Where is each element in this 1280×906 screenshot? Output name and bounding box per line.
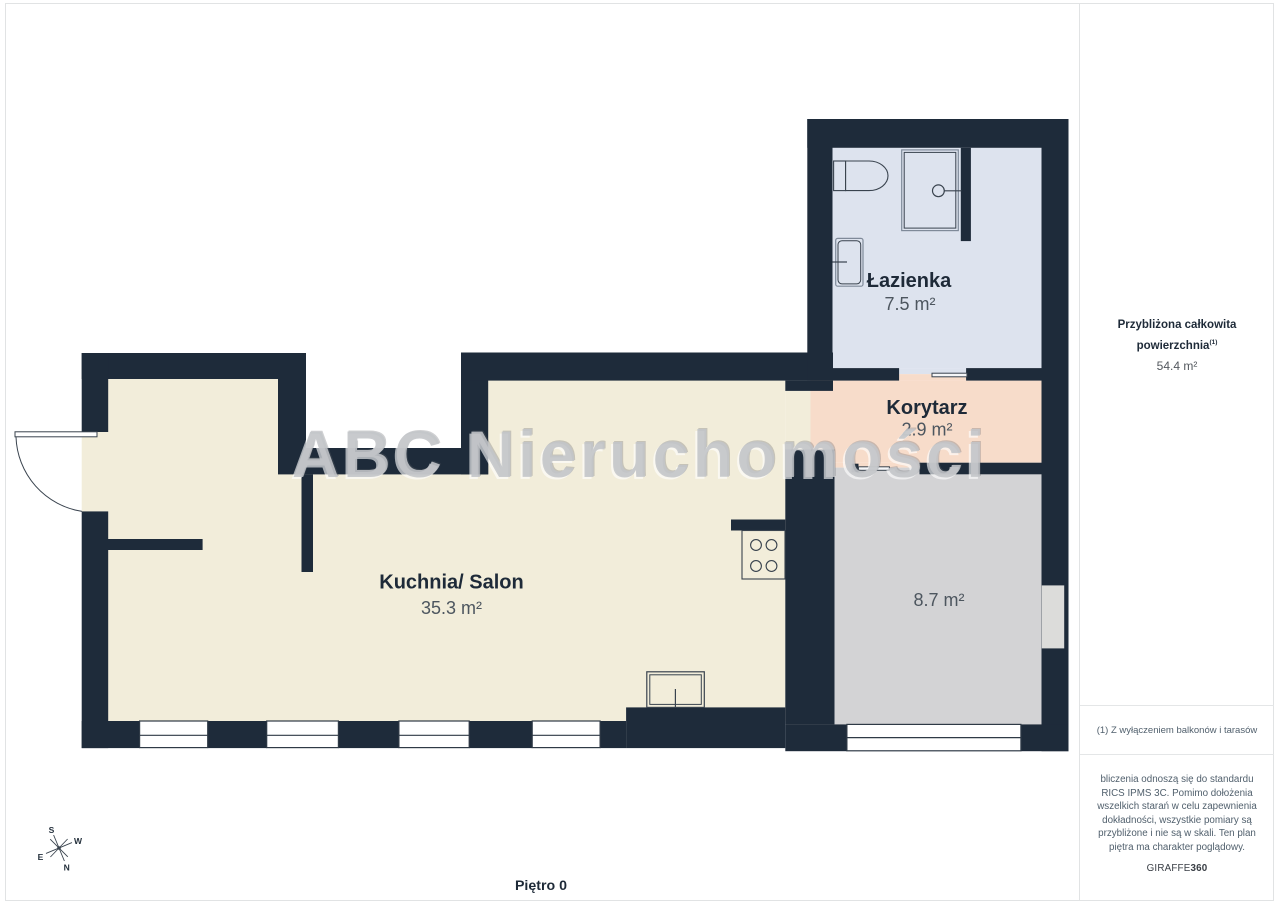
svg-text:8.7 m²: 8.7 m² — [913, 590, 964, 610]
svg-text:S: S — [49, 825, 55, 835]
svg-text:Kuchnia/ Salon: Kuchnia/ Salon — [379, 572, 523, 594]
svg-text:Łazienka: Łazienka — [867, 270, 952, 292]
svg-text:7.5 m²: 7.5 m² — [884, 294, 935, 314]
svg-text:Piętro 0: Piętro 0 — [515, 878, 567, 894]
svg-text:E: E — [38, 852, 44, 862]
svg-text:35.3 m²: 35.3 m² — [421, 598, 482, 618]
svg-text:W: W — [74, 836, 83, 846]
svg-text:N: N — [64, 863, 70, 873]
